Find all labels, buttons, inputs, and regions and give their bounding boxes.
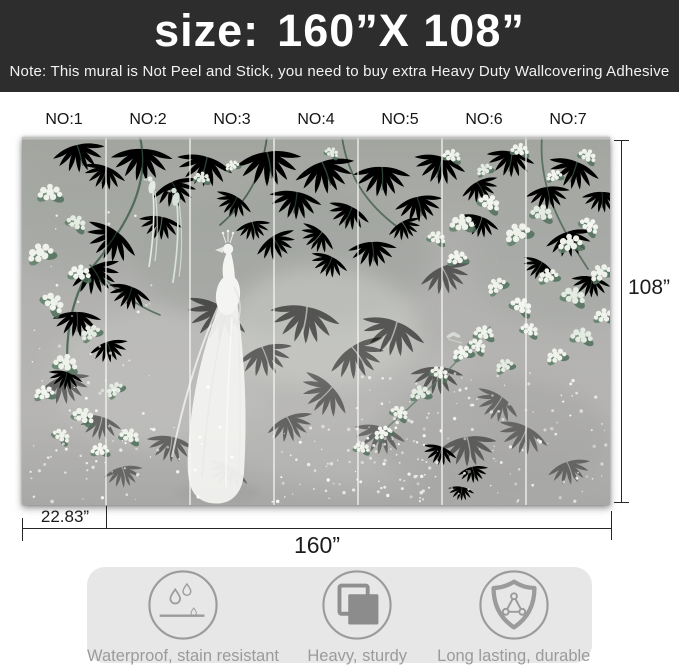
panel-label-2: NO:2 — [106, 107, 190, 133]
panel-label-3: NO:3 — [190, 107, 274, 133]
panel-label-7: NO:7 — [526, 107, 610, 133]
mural-image — [22, 137, 610, 505]
size-value: 160”X 108” — [277, 5, 525, 56]
mural-artwork — [22, 137, 610, 505]
height-dimension-tick-top — [614, 140, 629, 141]
panel-label-5: NO:5 — [358, 107, 442, 133]
panel-width-label: 22.83” — [24, 507, 106, 527]
height-dimension-line — [621, 141, 622, 503]
panel-label-1: NO:1 — [22, 107, 106, 133]
panel-label-6: NO:6 — [442, 107, 526, 133]
note-text: Note: This mural is Not Peel and Stick, … — [0, 62, 679, 82]
panel-width-tick — [106, 506, 107, 529]
width-dimension-line — [22, 528, 612, 529]
features-bar: Waterproof, stain resistant Heavy, sturd… — [87, 567, 592, 663]
feature-heavy: Heavy, sturdy — [279, 567, 436, 663]
feature-label: Waterproof, stain resistant — [87, 646, 279, 666]
water-drops-icon — [147, 569, 219, 646]
page-title: size:160”X 108” — [0, 2, 679, 60]
stacked-squares-icon — [321, 569, 393, 646]
panel-labels-row: NO:1 NO:2 NO:3 NO:4 NO:5 NO:6 NO:7 — [22, 107, 610, 133]
size-banner: size:160”X 108” Note: This mural is Not … — [0, 0, 679, 92]
height-dimension-label: 108” — [628, 276, 670, 300]
product-size-infographic: size:160”X 108” Note: This mural is Not … — [0, 0, 679, 670]
shield-network-icon — [478, 569, 550, 646]
width-dimension-label: 160” — [22, 532, 612, 559]
feature-waterproof: Waterproof, stain resistant — [87, 567, 279, 663]
height-dimension-tick-bottom — [614, 502, 629, 503]
feature-durable: Long lasting, durable — [435, 567, 592, 663]
feature-label: Heavy, sturdy — [307, 646, 407, 666]
panel-label-4: NO:4 — [274, 107, 358, 133]
feature-label: Long lasting, durable — [437, 646, 590, 666]
size-label: size: — [154, 5, 259, 56]
